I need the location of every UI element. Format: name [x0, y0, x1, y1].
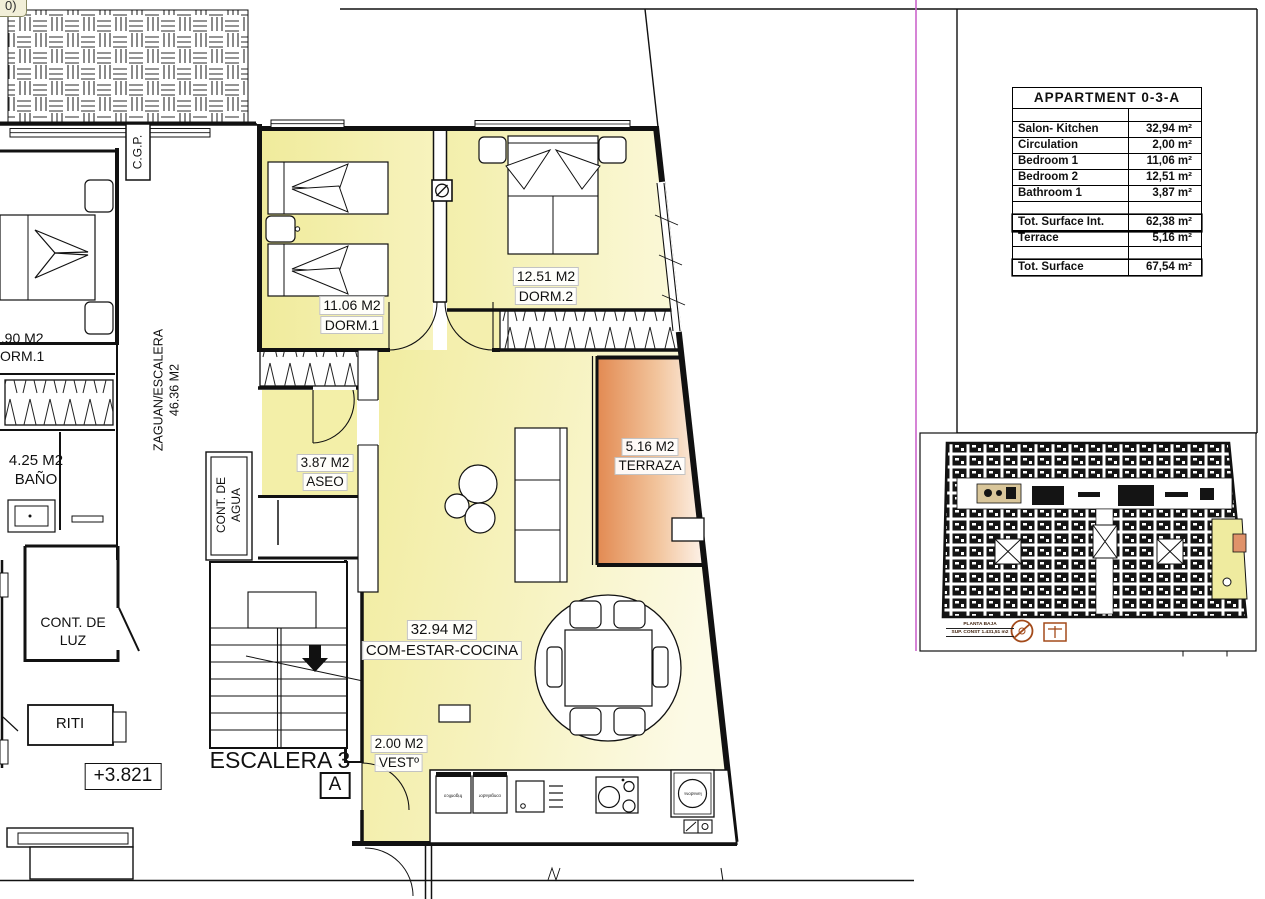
north-arrow-icon: [1044, 623, 1066, 641]
terrace-step: [672, 518, 704, 541]
dorm1-name: DORM.1: [321, 316, 383, 335]
vent-box: [684, 820, 712, 833]
bano-name: BAÑO: [15, 471, 58, 489]
level-mark: +3.821: [85, 763, 162, 790]
corner-tag: 0): [0, 0, 27, 17]
washer-label: lavadora: [684, 791, 701, 796]
vestibulo-area: 2.00 M2: [371, 735, 428, 753]
vestibulo-name: VESTº: [375, 754, 423, 772]
aseo-area: 3.87 M2: [297, 454, 354, 472]
table-row: Bedroom 1 11,06 m²: [1013, 154, 1201, 170]
exterior-paving-hatch: [0, 10, 256, 123]
table-row: Bedroom 2 12,51 m²: [1013, 170, 1201, 186]
freezer-label: congelador: [479, 793, 501, 798]
minimap-highlighted-unit: [1212, 519, 1247, 599]
hall-floor: [447, 310, 500, 350]
fridge-label: frigorifico: [444, 793, 462, 798]
staircase: [210, 562, 363, 748]
table-row-total-interior: Tot. Surface Int. 62,38 m²: [1013, 215, 1201, 231]
dorm-vecino-name: ORM.1: [0, 348, 44, 365]
cgp-label: C.G.P.: [131, 135, 146, 169]
riti-label: RITI: [56, 715, 84, 734]
dorm1-area: 11.06 M2: [319, 296, 384, 315]
apartment-summary-table: APPARTMENT 0-3-A Salon- Kitchen 32,94 m²…: [1012, 87, 1202, 276]
table-row-total: Tot. Surface 67,54 m²: [1013, 260, 1201, 275]
lower-left-room: [7, 828, 133, 879]
minimap-caption: PLANTA BAJA SUP. CONST 1.431,51 m2: [946, 621, 1014, 637]
table-spacer-row: [1013, 109, 1201, 122]
terraza-name: TERRAZA: [614, 457, 685, 475]
table-row: Circulation 2,00 m²: [1013, 138, 1201, 154]
dorm2-name: DORM.2: [515, 287, 577, 306]
stove: [596, 777, 638, 813]
table-spacer-row: [1013, 202, 1201, 215]
salon-name: COM-ESTAR-COCINA: [362, 641, 522, 661]
neighbor-furniture: [0, 180, 113, 334]
table-row: Bathroom 1 3,87 m²: [1013, 186, 1201, 202]
table-spacer-row: [1013, 247, 1201, 260]
bano-area: 4.25 M2: [9, 452, 63, 470]
aseo-name: ASEO: [302, 473, 348, 491]
room-label-salon: 32.94 M2 COM-ESTAR-COCINA: [362, 620, 522, 661]
dorm2-area: 12.51 M2: [513, 267, 579, 286]
dorm-vecino-area: .90 M2: [1, 330, 44, 347]
summary-table-title: APPARTMENT 0-3-A: [1013, 88, 1201, 109]
section-mark-label: A: [320, 772, 351, 799]
table-row: Salon- Kitchen 32,94 m²: [1013, 122, 1201, 138]
cont-agua-label: CONT. DE AGUA: [214, 477, 244, 533]
room-label-aseo: 3.87 M2 ASEO: [297, 454, 354, 492]
room-label-dorm2: 12.51 M2 DORM.2: [513, 267, 579, 306]
room-label-dorm-vecino: .90 M2 ORM.1: [0, 330, 44, 365]
room-label-dorm1: 11.06 M2 DORM.1: [319, 296, 384, 335]
terraza-area: 5.16 M2: [622, 438, 679, 456]
zaguan-label: ZAGUAN/ESCALERA 46.36 M2: [151, 329, 182, 451]
stair-name-label: ESCALERA 3: [210, 748, 351, 773]
floorplan-sheet: 0) 11.06 M2 DORM.1 12.51 M2 DORM.2 3.87 …: [0, 0, 1265, 899]
room-label-vestibulo: 2.00 M2 VESTº: [371, 735, 428, 773]
salon-area: 32.94 M2: [407, 620, 478, 640]
room-label-bano-vecino: 4.25 M2 BAÑO: [9, 452, 63, 489]
room-label-terraza: 5.16 M2 TERRAZA: [614, 438, 685, 476]
kitchen-counter: [430, 770, 737, 843]
cont-luz-label: CONT. DE LUZ: [40, 614, 105, 649]
table-row-terrace: Terrace 5,16 m²: [1013, 231, 1201, 247]
shaft-symbol: [432, 180, 452, 201]
